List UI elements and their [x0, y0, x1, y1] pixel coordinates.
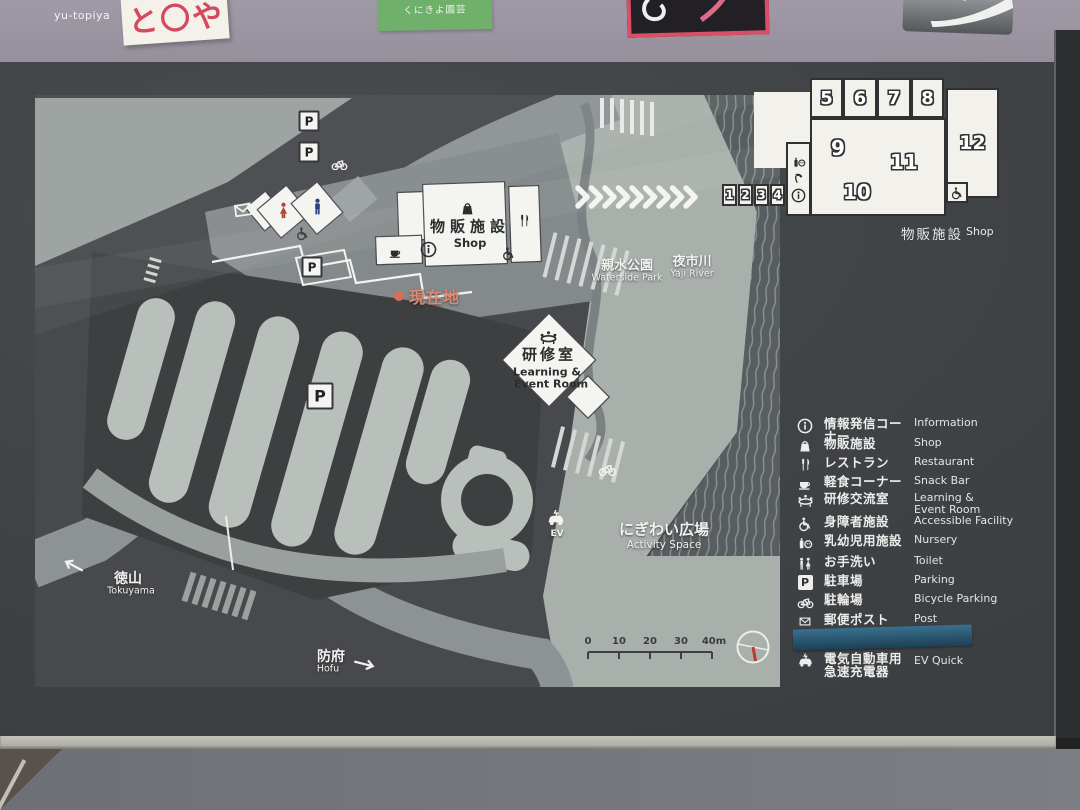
floorplan-unit-8: 8 [911, 78, 944, 118]
floorplan-unit-11: 11 [890, 150, 918, 174]
floorplan-unit-3: 3 [754, 184, 769, 206]
floorplan-unit-10: 10 [843, 180, 871, 204]
scale-tick-20: 20 [643, 636, 657, 647]
legend-row-snackbar: 軽食コーナーSnack Bar [795, 475, 969, 492]
current-location-label: 現在地 [409, 284, 460, 308]
current-location-dot [394, 291, 404, 301]
wheelchair-icon-legend [795, 515, 815, 532]
wheelchair-icon-map-1 [295, 226, 310, 241]
shop-icon-map [459, 200, 476, 217]
learning-room-label-en2: Event Room [514, 378, 588, 391]
legend-row-restaurant: レストランRestaurant [795, 456, 974, 473]
floorplan-unit-1: 1 [722, 184, 737, 206]
legend-row-parking: P 駐車場Parking [795, 574, 955, 591]
ev-icon-legend [795, 652, 815, 669]
meeting-icon-legend [795, 492, 815, 509]
parking-badge-3: P [302, 257, 323, 278]
lower-wall-panel [0, 749, 1080, 810]
bicycle-icon-legend [795, 593, 815, 610]
floorplan-main-hall [810, 118, 946, 216]
restaurant-icon-map [517, 213, 532, 228]
post-icon-legend [795, 613, 815, 630]
hofu-label-en: Hofu [317, 664, 339, 675]
legend-row-learning: 研修交流室 Learning &Event Room [795, 492, 980, 516]
current-location-marker: 現在地 [394, 284, 460, 308]
legend-row-bicycle: 駐輪場Bicycle Parking [795, 593, 997, 610]
nursery-icon-floorplan [792, 155, 806, 169]
bicycle-icon-map-2 [598, 462, 617, 476]
tokuyama-label-en: Tokuyama [107, 586, 155, 597]
floorplan-accessible-box [946, 182, 968, 203]
floorplan-unit-7: 7 [877, 78, 911, 118]
waterside-park-label-ja: 親水公園 [601, 255, 653, 274]
scale-tick-10: 10 [612, 636, 626, 647]
wheelchair-icon-floorplan [950, 186, 964, 200]
floorplan-caption-ja: 物販施設 [901, 223, 963, 243]
floorplan-unit-5: 5 [810, 78, 843, 118]
meeting-icon-map [539, 330, 558, 344]
waterside-park-label-en: Waterside Park [591, 273, 662, 284]
floorplan-unit-4: 4 [770, 184, 785, 206]
ev-charger-label: EV [550, 529, 563, 539]
legend-row-ev: 電気自動車用急速充電器 EV Quick [795, 652, 963, 678]
floorplan-unit-9: 9 [831, 136, 845, 160]
post-icon-map [229, 198, 258, 221]
info-icon-legend [795, 417, 815, 434]
phone-icon-floorplan [792, 172, 805, 185]
legend-row-nursery: 乳幼児用施設Nursery [795, 534, 957, 551]
activity-space-label-en: Activity Space [627, 539, 702, 551]
ground-corner [0, 749, 62, 810]
wheelchair-icon-map-2 [501, 246, 516, 261]
info-icon-floorplan [791, 188, 806, 203]
snackbar-icon-legend [795, 475, 815, 492]
toilet-man-icon [309, 198, 326, 215]
ev-charger-icon-map [546, 510, 566, 526]
restaurant-icon-legend [795, 456, 815, 473]
river-label-en: Yaji River [670, 269, 713, 280]
floorplan-caption-en: Shop [966, 225, 994, 238]
activity-space-label-ja: にぎわい広場 [619, 519, 709, 540]
bicycle-icon-map-1 [331, 158, 348, 170]
river-label-ja: 夜市川 [672, 251, 711, 270]
floorplan-unit-12: 12 [959, 132, 985, 154]
legend-row-accessible: 身障者施設Accessible Facility [795, 515, 1013, 532]
nursery-icon-legend [795, 534, 815, 551]
floorplan-icon-strip [786, 142, 811, 216]
board-bottom-edge [0, 736, 1056, 749]
floorplan-unit-6: 6 [843, 78, 877, 118]
snackbar-icon-map [388, 245, 403, 260]
shop-building-label-en: Shop [454, 236, 487, 250]
legend-row-toilet: お手洗いToilet [795, 555, 943, 572]
info-icon-map [420, 241, 437, 258]
floorplan-unit-2: 2 [738, 184, 753, 206]
shop-building-label-ja: 物販施設 [430, 216, 510, 237]
parking-badge-1: P [299, 111, 320, 132]
parking-badge-2: P [299, 142, 320, 163]
legend-row-shop: 物販施設Shop [795, 437, 942, 454]
scale-tick-0: 0 [585, 636, 592, 647]
toilet-icon-legend [795, 555, 815, 572]
parking-icon-legend: P [795, 574, 815, 591]
learning-room-label-ja: 研修室 [522, 344, 576, 365]
scale-tick-30: 30 [674, 636, 688, 647]
shop-icon-legend [795, 437, 815, 454]
scale-tick-40: 40m [702, 636, 726, 647]
signboard-photo: yu-topiya と〇や くにきよ園芸 [0, 0, 1080, 810]
parking-badge-main: P [307, 383, 334, 410]
toilet-woman-icon [275, 202, 292, 219]
